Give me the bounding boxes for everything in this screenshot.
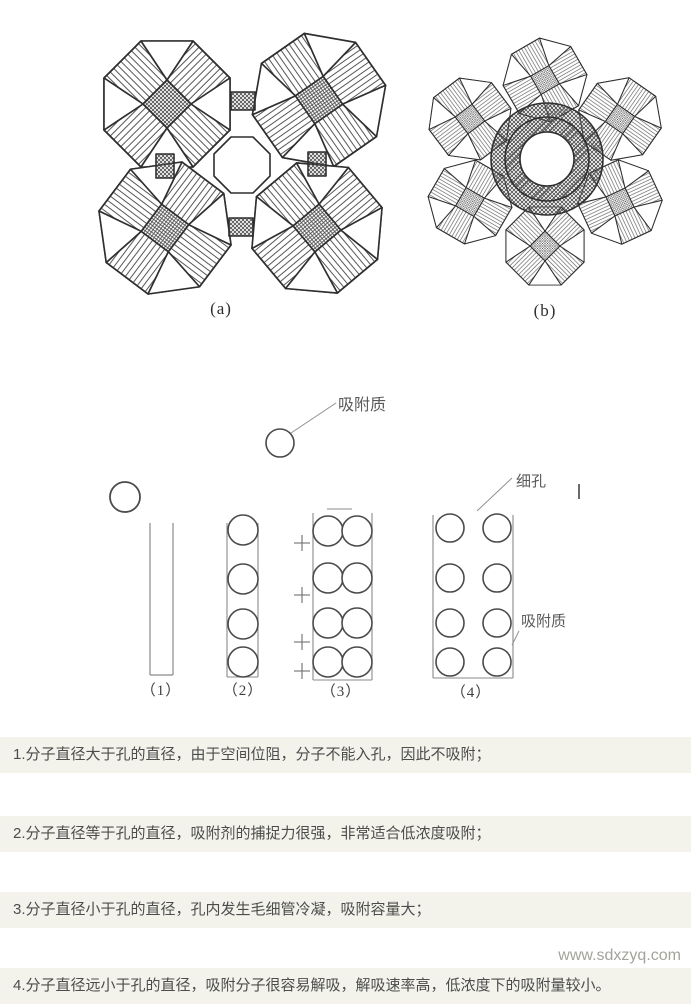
zeolite-framework-b-drawing xyxy=(408,36,683,294)
watermark: www.sdxzyq.com xyxy=(558,947,681,965)
pore-column-4 xyxy=(433,514,513,678)
pore-column-2-label: （2） xyxy=(223,682,264,699)
adsorbate-molecule-left xyxy=(110,482,140,512)
pore-column-2 xyxy=(227,515,258,677)
note-1-text: 1.分子直径大于孔的直径，由于空间位阻，分子不能入孔，因此不吸附； xyxy=(13,746,491,763)
fine-pore-label: 细孔 xyxy=(516,473,546,490)
note-1: 1.分子直径大于孔的直径，由于空间位阻，分子不能入孔，因此不吸附； xyxy=(0,737,691,773)
note-4-text: 4.分子直径远小于孔的直径，吸附分子很容易解吸，解吸速率高，低浓度下的吸附量较小… xyxy=(13,977,611,994)
note-2-text: 2.分子直径等于孔的直径，吸附剂的捕捉力很强，非常适合低浓度吸附； xyxy=(13,825,491,842)
pore-size-diagram: 吸附质 （1） （2） xyxy=(0,388,694,705)
pore-column-3 xyxy=(294,509,372,680)
note-3: 3.分子直径小于孔的直径，孔内发生毛细管冷凝，吸附容量大； xyxy=(0,892,691,928)
figure-a-label: (a) xyxy=(191,299,251,319)
document-page: { "figures": { "label_a": "(a)", "label_… xyxy=(0,0,694,1000)
note-4: 4.分子直径远小于孔的直径，吸附分子很容易解吸，解吸速率高，低浓度下的吸附量较小… xyxy=(0,968,691,1004)
adsorbate-label-top: 吸附质 xyxy=(338,396,386,414)
measure-marks xyxy=(294,535,310,679)
fine-pore-annotation: 细孔 xyxy=(477,473,546,511)
adsorbate-annotation-right: 吸附质 xyxy=(512,613,566,645)
adsorbate-label-right: 吸附质 xyxy=(521,613,566,630)
note-2: 2.分子直径等于孔的直径，吸附剂的捕捉力很强，非常适合低浓度吸附； xyxy=(0,816,691,852)
pore-ring-window xyxy=(520,132,574,186)
alpha-cage-window xyxy=(214,137,270,193)
pore-column-1 xyxy=(150,523,173,675)
pore-column-1-label: （1） xyxy=(141,682,182,699)
pore-column-3-label: （3） xyxy=(321,683,362,700)
figure-b-label: (b) xyxy=(515,301,575,321)
note-3-text: 3.分子直径小于孔的直径，孔内发生毛细管冷凝，吸附容量大； xyxy=(13,901,431,918)
zeolite-framework-a-drawing xyxy=(85,26,400,304)
adsorbate-molecule-top: 吸附质 xyxy=(266,396,386,457)
pore-column-4-label: （4） xyxy=(451,684,492,701)
